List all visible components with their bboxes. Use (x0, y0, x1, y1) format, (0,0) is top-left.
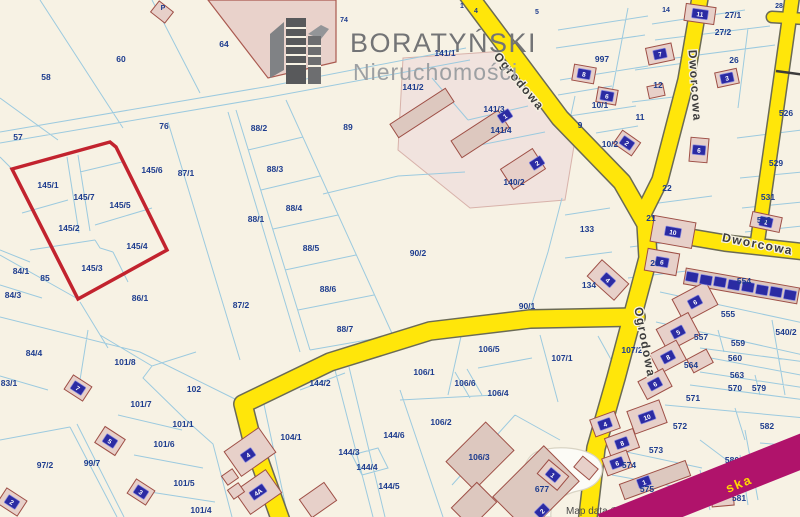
parcel-label: 540/2 (775, 327, 797, 337)
parcel-label: 526 (779, 108, 793, 118)
parcel-label: 144/3 (338, 447, 360, 457)
parcel-label: 20 (650, 258, 660, 268)
parcel-label: 84/3 (5, 290, 22, 300)
parcel-label: 88/7 (337, 324, 354, 334)
parcel-label: P (161, 5, 166, 12)
parcel-label: 84/4 (26, 348, 43, 358)
parcel-label: 88/2 (251, 123, 268, 133)
parcel-label: 574 (622, 460, 636, 470)
parcel-label: 90/2 (410, 248, 427, 258)
parcel-label: 88/3 (267, 164, 284, 174)
map-canvas: 7532121178632610614658610486135744A21 P1… (0, 0, 800, 517)
parcel-label: 106/3 (468, 452, 490, 462)
parcel-label: 531 (761, 192, 775, 202)
parcel-label: 144/4 (356, 462, 378, 472)
parcel-label: 27/2 (715, 27, 732, 37)
parcel-label: 60 (116, 54, 126, 64)
parcel-label: 145/1 (37, 180, 59, 190)
parcel-label: 102 (187, 384, 201, 394)
parcel-label: 12 (653, 80, 663, 90)
parcel-label: 88/5 (303, 243, 320, 253)
map-viewport[interactable]: 7532121178632610614658610486135744A21 P1… (0, 0, 800, 517)
parcel-label: 28 (775, 3, 783, 10)
parcel-label: 106/1 (413, 367, 435, 377)
parcel-label: 76 (159, 121, 169, 131)
address-plate (755, 284, 768, 295)
svg-text:11: 11 (696, 11, 704, 19)
parcel-label: 87/2 (233, 300, 250, 310)
parcel-label: 579 (752, 383, 766, 393)
parcel-label: 101/4 (190, 505, 212, 515)
parcel-label: 5 (535, 9, 539, 16)
parcel-label: 106/5 (478, 344, 500, 354)
parcel-label: 572 (673, 421, 687, 431)
logo-title: BORATYŃSKI (350, 28, 537, 58)
parcel-label: 27/1 (725, 10, 742, 20)
parcel-label: 573 (649, 445, 663, 455)
parcel-label: 4 (474, 8, 478, 15)
parcel-label: 88/6 (320, 284, 337, 294)
parcel-label: 101/1 (172, 419, 194, 429)
parcel-label: 11 (636, 112, 645, 122)
parcel-label: 10/2 (602, 139, 619, 149)
address-plate (685, 271, 698, 282)
parcel-label: 57 (13, 132, 23, 142)
address-plate: 11 (691, 8, 708, 20)
address-plate (699, 274, 712, 285)
parcel-label: 88/1 (248, 214, 265, 224)
parcel-label: 74 (340, 17, 348, 24)
parcel-label: 107/1 (551, 353, 573, 363)
parcel-label: 64 (219, 39, 229, 49)
parcel-label: 90/1 (519, 301, 536, 311)
parcel-label: 88/4 (286, 203, 303, 213)
parcel-label: 563 (730, 370, 744, 380)
parcel-label: 133 (580, 224, 594, 234)
road-stub (772, 17, 800, 19)
parcel-label: 99/7 (84, 458, 101, 468)
parcel-label: 145/2 (58, 223, 80, 233)
parcel-label: 145/4 (126, 241, 148, 251)
parcel-label: 141/3 (483, 104, 505, 114)
parcel-label: 529 (769, 158, 783, 168)
parcel-label: 134 (582, 280, 596, 290)
parcel-label: 145/3 (81, 263, 103, 273)
parcel-label: 532 (757, 215, 771, 225)
parcel-label: 570 (728, 383, 742, 393)
parcel-label: 104/1 (280, 432, 302, 442)
parcel-label: 575 (640, 484, 654, 494)
address-plate (769, 286, 782, 297)
parcel-label: 559 (731, 338, 745, 348)
parcel-label: 564 (684, 360, 698, 370)
parcel-label: 101/6 (153, 439, 175, 449)
parcel-label: 26 (729, 55, 739, 65)
address-plate (713, 276, 726, 287)
parcel-label: 145/6 (141, 165, 163, 175)
parcel-label: 1 (460, 3, 464, 10)
parcel-label: 144/6 (383, 430, 405, 440)
parcel-label: 554 (737, 276, 751, 286)
parcel-label: 140/2 (503, 177, 525, 187)
parcel-label: 145/5 (109, 200, 131, 210)
parcel-label: 101/7 (130, 399, 152, 409)
parcel-label: 83/1 (1, 378, 18, 388)
parcel-label: 10/1 (592, 100, 609, 110)
parcel-label: 560 (728, 353, 742, 363)
parcel-label: 101/5 (173, 478, 195, 488)
parcel-label: 101/8 (114, 357, 136, 367)
parcel-label: 86/1 (132, 293, 149, 303)
address-plate: 8 (577, 68, 591, 80)
parcel-label: 555 (721, 309, 735, 319)
parcel-label: 144/2 (309, 378, 331, 388)
parcel-label: 106/2 (430, 417, 452, 427)
parcel-label: 677 (535, 484, 549, 494)
parcel-label: 997 (595, 54, 609, 64)
parcel-label: 106/4 (487, 388, 509, 398)
parcel-label: 14 (662, 7, 670, 14)
parcel-label: 582 (760, 421, 774, 431)
address-plate (783, 289, 796, 300)
parcel-label: 144/5 (378, 481, 400, 491)
parcel-label: 106/6 (454, 378, 476, 388)
parcel-label: 571 (686, 393, 700, 403)
parcel-label: 89 (343, 122, 353, 132)
parcel-label: 87/1 (178, 168, 195, 178)
parcel-label: 85 (40, 273, 50, 283)
parcel-label: 9 (578, 120, 583, 130)
parcel-label: 58 (41, 72, 51, 82)
parcel-label: 21 (646, 213, 656, 223)
parcel-label: 84/1 (13, 266, 30, 276)
parcel-label: 141/4 (490, 125, 512, 135)
parcel-label: 145/7 (73, 192, 95, 202)
parcel-label: 97/2 (37, 460, 54, 470)
logo-subtitle: Nieruchomości (353, 59, 518, 85)
address-plate: 6 (692, 145, 706, 156)
parcel-label: 557 (694, 332, 708, 342)
parcel-label: 22 (662, 183, 672, 193)
